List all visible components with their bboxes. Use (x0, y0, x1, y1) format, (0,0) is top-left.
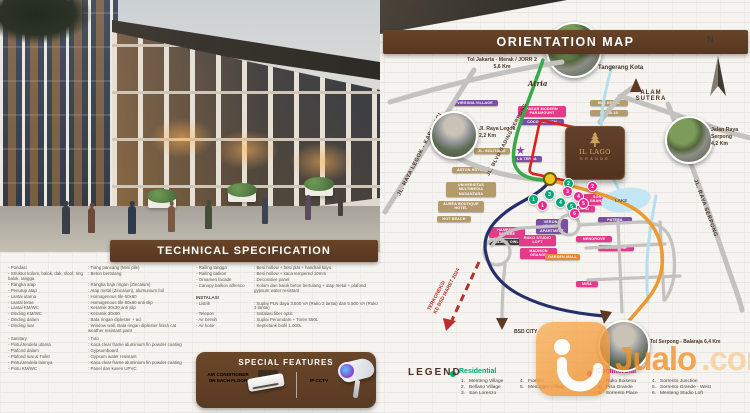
feature-ac-label: AIR CONDITIONER ON EACH FLOOR (204, 372, 252, 384)
pedestrian (168, 206, 175, 232)
spec-label: Rangka atap (8, 283, 88, 288)
warm-light (150, 118, 214, 158)
warm-light (290, 142, 354, 182)
serpong-name-1: Jalan Raya (711, 127, 749, 134)
site-location-dot (543, 172, 557, 186)
watermark-tld: .com (701, 340, 750, 378)
orientation-map-title-bar: ORIENTATION MAP (383, 30, 748, 54)
spec-value: Gypsum water resistant (88, 355, 186, 360)
shrub (304, 177, 334, 191)
spec-row: Canopy balkon alfrescoKolom dan balok be… (196, 284, 378, 294)
legok-label: Jl. Raya Legok 2,2 Km (479, 126, 525, 140)
spec-label: Canopy balkon alfresco (196, 284, 254, 294)
spec-label: Air kotor (196, 324, 254, 329)
pedestrian (262, 202, 268, 224)
hero-render-image (0, 0, 380, 252)
compass-needle-light (710, 56, 718, 96)
spec-row: Dinding luarWindow wall, Bata ringan dip… (8, 324, 186, 334)
tol-jorr-distance: 5,6 Km (462, 64, 542, 71)
residential-marker-4: 4 (555, 197, 566, 208)
spec-row: Pintu KM/WCPanel dan kusen UPVC (8, 367, 186, 372)
spec-row: Rangka atapRangka baja ringan (Zincalum) (8, 283, 186, 288)
residential-label: Residential (459, 368, 496, 375)
tree-icon (588, 132, 602, 147)
commercial-marker-6: 6 (569, 208, 580, 219)
spec-value: Atap metal (Zincalum), alumunium foil (88, 289, 186, 294)
spec-row: Pintu/Jendela lainnyaKaca clear frame al… (8, 361, 186, 366)
jualo-glyph-icon (536, 322, 610, 396)
spec-section-header: INSTALASI (196, 296, 378, 301)
spec-value: Panel dan kusen UPVC (88, 367, 186, 372)
brochure-page: TECHNICAL SPECIFICATION ORIENTATION MAP … (0, 0, 750, 413)
spec-label: Plafond luar & Toilet (8, 355, 88, 360)
il-lago-grande-logo: IL LAGO GRANDE (565, 126, 625, 180)
pedestrian (205, 205, 212, 229)
spec-value: Kolom dan balok beton bertulang + atap m… (254, 284, 378, 294)
compass-n-label: N (707, 34, 714, 44)
cctv-camera-icon (336, 354, 380, 406)
tol-jorr-label: Tol Jakarta - Merak / JORR 2 5,6 Km (462, 57, 542, 71)
legok-distance: 2,2 Km (479, 133, 525, 140)
cctv-lens (338, 362, 356, 380)
spec-row: Struktur kolom, balok, dak, sloof, ring … (8, 272, 186, 282)
commercial-marker-2: 2 (587, 181, 598, 192)
spec-column-left: PondasiTiang pancang (Mini pile) Struktu… (8, 266, 186, 373)
spec-label: Pintu/Jendela lainnya (8, 361, 88, 366)
spec-label: Dinding luar (8, 324, 88, 334)
spec-row: Plafond luar & ToiletGypsum water resist… (8, 355, 186, 360)
project-name-line1: IL LAGO (566, 148, 624, 156)
spec-label: Penutup atap (8, 289, 88, 294)
spec-label: Struktur kolom, balok, dak, sloof, ring … (8, 272, 88, 282)
spec-label: Lantai utama (8, 295, 88, 300)
photo-jalan-raya-serpong (665, 116, 713, 164)
pedestrian (338, 198, 343, 216)
commercial-marker-1: 1 (537, 200, 548, 211)
pedestrian (88, 208, 95, 233)
road-label-blvd-gading-serpong: JL. BLVD GADING SERPONG (485, 102, 528, 176)
spec-row: ListrikSuplai PLN daya 3.500 VA (Ruko 2 … (196, 302, 378, 312)
orientation-map-title: ORIENTATION MAP (496, 35, 634, 49)
jualo-app-icon (536, 322, 610, 396)
commercial-marker-3: 3 (562, 186, 573, 197)
commercial-marker-5: 5 (578, 198, 589, 209)
alam-sutera-line2: SUTERA (628, 96, 674, 102)
legok-name: Jl. Raya Legok (479, 126, 525, 133)
atria-label: Atria (528, 79, 547, 88)
spec-label: Pintu KM/WC (8, 367, 88, 372)
lake-label: LAKE (615, 198, 627, 203)
pedestrian (62, 206, 70, 234)
spec-value: Window wall, Bata ringan diplester finis… (88, 324, 186, 334)
spec-value: Kaca clear frame aluminium fin powder co… (88, 361, 186, 366)
spec-row: Penutup atapAtap metal (Zincalum), alumu… (8, 289, 186, 294)
red-arrow (443, 318, 456, 331)
spec-value: Beton bertulang (88, 272, 186, 282)
residential-marker-3: 3 (544, 189, 555, 200)
pedestrian (128, 206, 136, 234)
project-name-line2: GRANDE (566, 157, 624, 161)
bsd-city-label: BSD CITY (514, 329, 537, 335)
spec-value: Rangka baja ringan (Zincalum) (88, 283, 186, 288)
serpong-name-2: Serpong (711, 134, 749, 141)
spec-value: Homogenous tile 60x60 (88, 295, 186, 300)
legend-title: LEGEND (408, 367, 462, 378)
alam-sutera-label: ALAM SUTERA (628, 90, 674, 102)
spec-value: Septictank biofil 1.000L (254, 324, 378, 329)
pedestrian (305, 200, 311, 220)
technical-specification-title-bar: TECHNICAL SPECIFICATION (110, 240, 378, 262)
tangerang-kota-label: Tangerang Kota (598, 65, 643, 71)
warm-light (215, 130, 279, 170)
watermark-brand-name: Jualo (615, 340, 696, 378)
feature-divider (296, 372, 297, 398)
spec-column-right: Railing tanggaBesi hollow + besi plat + … (196, 266, 378, 330)
spec-row: Lantai utamaHomogenous tile 60x60 (8, 295, 186, 300)
photo-jl-raya-legok (430, 111, 478, 159)
jualo-watermark: Jualo.com (536, 322, 750, 396)
serpong-label: Jalan Raya Serpong 4,2 Km (711, 127, 749, 147)
spec-label: Listrik (196, 302, 254, 312)
spec-value: Suplai PLN daya 3.500 VA (Ruko 2 lantai)… (254, 302, 378, 312)
technical-specification-title: TECHNICAL SPECIFICATION (157, 245, 331, 257)
cctv-stand (353, 380, 360, 399)
shrub (227, 183, 257, 197)
tol-jorr-name: Tol Jakarta - Merak / JORR 2 (462, 57, 542, 64)
bsd-arrow (496, 318, 508, 330)
feature-cctv-label: IP CCTV (304, 378, 334, 384)
serpong-distance: 4,2 Km (711, 141, 749, 148)
spec-row: Air kotorSeptictank biofil 1.000L (196, 324, 378, 329)
compass-needle-dark (718, 56, 726, 96)
road-label-raya-serpong: JL. RAYA SERPONG (692, 179, 718, 238)
